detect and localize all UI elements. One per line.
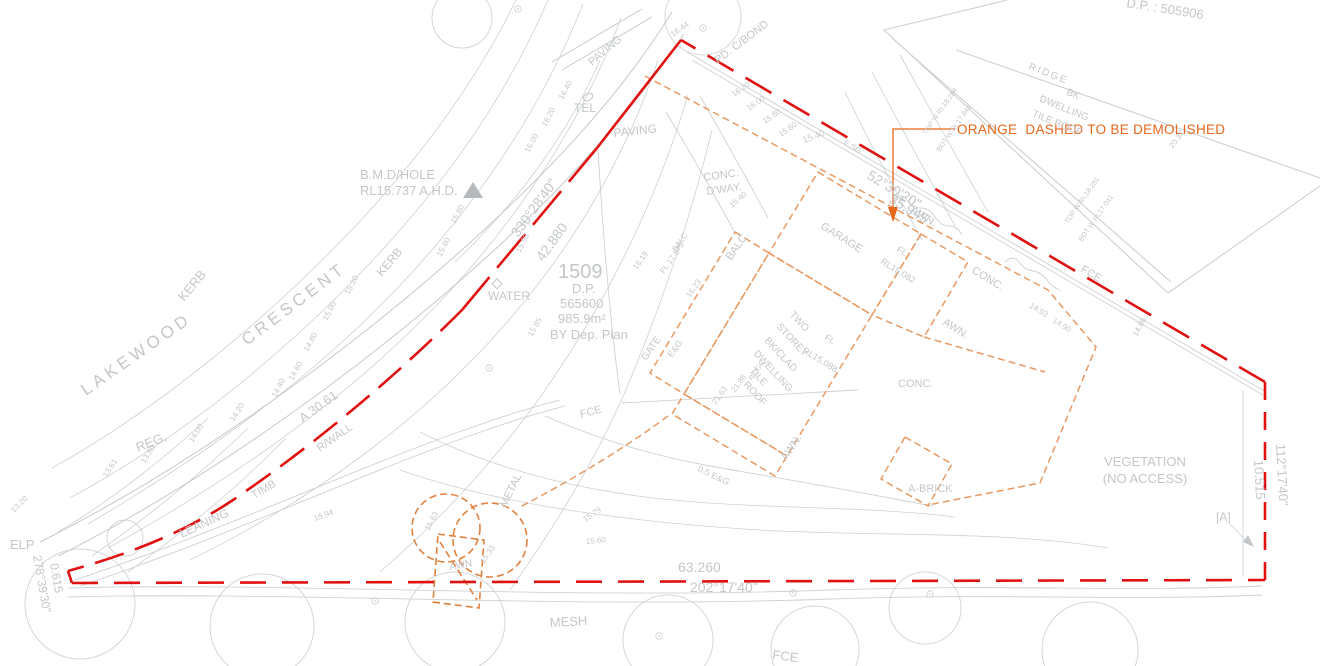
spot-1493: 14.93 xyxy=(1028,301,1050,319)
mesh-label: MESH xyxy=(549,613,587,630)
point-a-arrowhead xyxy=(1243,535,1254,547)
neighbor-line-1: BK xyxy=(1065,87,1082,102)
benchmark-line2: RL15.737 A.H.D. xyxy=(360,183,458,198)
fence-colorbond-label: PD. C/BOND xyxy=(713,18,772,66)
awn-label-2: AWN. xyxy=(940,316,970,341)
balc-label: BALC. xyxy=(724,230,752,263)
distance-east: 10.515 xyxy=(1251,459,1268,499)
contour-1520: 15.20 xyxy=(343,274,361,296)
fce-mid: FCE xyxy=(579,404,603,421)
dimension-helpers xyxy=(1230,390,1254,577)
neighbor-ridge-line xyxy=(956,50,1320,178)
dwelling-fl-1: FL xyxy=(823,332,837,346)
contour-1580: 15.80 xyxy=(449,203,467,225)
fce-bottom: FCE xyxy=(772,647,800,665)
lot-number: 1509 xyxy=(558,261,603,283)
benchmark-line1: B.M.D/HOLE xyxy=(360,167,435,182)
abrick-label: A-BRICK xyxy=(908,483,953,495)
spot-2163: 21.63 xyxy=(710,384,729,406)
contour-1361: 13.61 xyxy=(101,457,120,479)
vegetation-2: (NO ACCESS) xyxy=(1103,471,1188,486)
lot-dp-number: 565600 xyxy=(560,296,603,311)
contour-ne-1600: 16.00 xyxy=(745,93,767,112)
spot-1585: 15.85 xyxy=(526,316,544,338)
rwall-label: R/WALL xyxy=(315,421,355,454)
spot-1490: 14.90 xyxy=(1051,316,1073,334)
elp-label: ELP xyxy=(10,537,35,552)
contour-1420: 14.20 xyxy=(228,401,247,423)
contour-1620: 16.20 xyxy=(540,106,558,128)
boundary-segment-ne xyxy=(681,40,1265,382)
demolition-fence-line xyxy=(645,76,1096,505)
distance-south: 63.260 xyxy=(678,559,721,575)
awn-label-3: AWN. xyxy=(779,433,805,463)
contour-1644: 16.44 xyxy=(669,19,691,38)
boundary-segment-jog xyxy=(68,571,72,583)
distance-nw: 42.880 xyxy=(532,220,570,264)
contour-1480: 14.80 xyxy=(302,331,320,353)
contour-1400: 14.00 xyxy=(187,422,206,444)
eg-label-2: 0.5 E&G xyxy=(696,464,731,487)
contour-1320: 13.20 xyxy=(9,494,30,515)
conc-edge-line xyxy=(924,337,1045,372)
conc-label-1: CONC. xyxy=(969,264,1005,293)
lot-area: 985.9m² xyxy=(558,311,606,326)
metal-label: METAL xyxy=(498,472,525,509)
kerb-label-2: KERB xyxy=(374,245,406,279)
contour-1440: 14.40 xyxy=(270,377,288,399)
contour-ne-1620: 16.20 xyxy=(730,79,752,98)
demolition-connector-line xyxy=(518,416,668,508)
water-meter-icon xyxy=(492,279,502,289)
contour-1460: 14.60 xyxy=(287,360,305,382)
garage-label: GARAGE xyxy=(818,220,864,255)
timb-label: TIMB xyxy=(250,478,279,502)
contour-ne-1540: 15.40 xyxy=(801,128,826,145)
boundary-segment-south xyxy=(72,580,1265,583)
contour-1640: 16.40 xyxy=(557,79,575,101)
eg-label: E&G xyxy=(665,338,684,359)
kerb-label: KERB xyxy=(175,267,209,304)
vegetation-1: VEGETATION xyxy=(1104,454,1186,469)
leaning-label: LEANING xyxy=(177,506,231,541)
contour-1600: 16.00 xyxy=(523,132,541,154)
neighbor-dwelling-outline xyxy=(884,0,1320,293)
garage-fl-2: RL15.082 xyxy=(879,256,917,285)
esg-label: E.SG xyxy=(842,138,863,156)
contour-ne-1580: 15.80 xyxy=(761,106,783,125)
spot-1563: 15.63 xyxy=(423,510,441,532)
spot-1560b: 15.60 xyxy=(585,535,606,546)
neighbor-dp: D.P. : 505906 xyxy=(1126,0,1205,22)
spot-1594: 15.94 xyxy=(313,507,335,522)
fce-ne: FCE xyxy=(1078,263,1103,285)
water-label: WATER xyxy=(488,289,530,303)
contour-ne-1560: 15.60 xyxy=(777,119,799,138)
contour-1560: 15.60 xyxy=(435,236,453,258)
contour-1500: 15.00 xyxy=(321,300,339,322)
lot-dp: D.P. xyxy=(572,281,596,296)
spot-1579: 15.79 xyxy=(581,505,603,524)
site-plan-canvas: ORANGE DASHED TO BE DEMOLISHED LAKEWOODC… xyxy=(0,0,1320,666)
bearing-south: 202°17'40" xyxy=(690,579,758,595)
dwelling-fl-2: RL15.088 xyxy=(801,345,839,374)
paving-label-2: PAVING xyxy=(613,122,658,140)
arc-length: A 30.61 xyxy=(296,387,341,425)
awning-outline-2 xyxy=(672,394,787,476)
survey-site-plan: ORANGE DASHED TO BE DEMOLISHED LAKEWOODC… xyxy=(0,0,1320,666)
lot-by-dep-plan: BY Dep. Plan xyxy=(550,327,628,342)
spot-1533: 15.33 xyxy=(478,543,497,565)
conc-label-2: CONC. xyxy=(898,378,933,390)
abrick-outline xyxy=(881,437,952,506)
point-a: [A] xyxy=(1216,510,1231,524)
spot-1619: 16.19 xyxy=(631,249,650,271)
bearing-east: 112°17'40" xyxy=(1273,443,1291,506)
tel-label: TEL xyxy=(574,101,596,115)
